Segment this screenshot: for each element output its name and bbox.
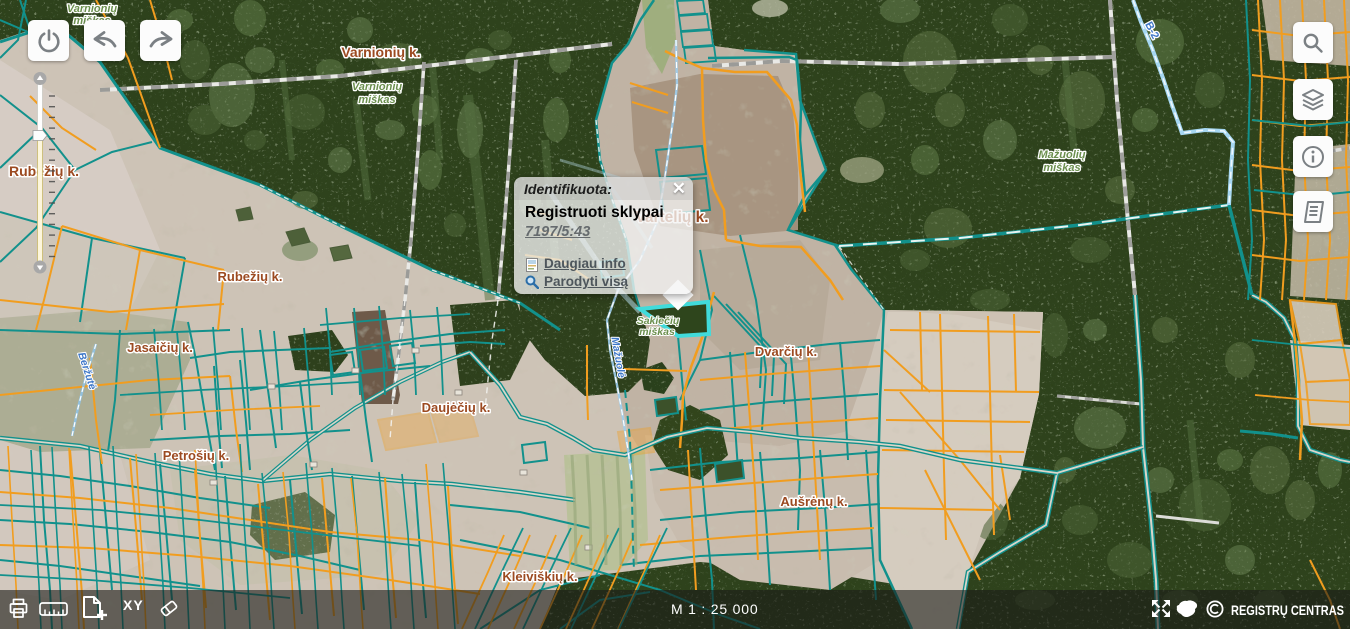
svg-text:miškas: miškas (1043, 162, 1080, 174)
svg-text:Rubežių k.: Rubežių k. (217, 269, 282, 284)
svg-text:Aušrėnų k.: Aušrėnų k. (780, 494, 847, 509)
svg-text:REGISTRŲ CENTRAS: REGISTRŲ CENTRAS (1231, 602, 1344, 618)
svg-text:Dvarčių k.: Dvarčių k. (755, 344, 817, 359)
svg-text:Kleiviškių k.: Kleiviškių k. (502, 569, 577, 584)
svg-text:Varnionių: Varnionių (67, 3, 118, 15)
svg-text:Daujėčių k.: Daujėčių k. (422, 400, 491, 415)
svg-text:Varnionių k.: Varnionių k. (341, 44, 420, 60)
svg-text:Petrošių k.: Petrošių k. (163, 448, 229, 463)
svg-text:Jasaičių k.: Jasaičių k. (127, 340, 193, 355)
svg-text:Mažuolių: Mažuolių (1038, 149, 1085, 161)
svg-text:miškas: miškas (358, 94, 395, 106)
svg-text:miškas: miškas (639, 326, 675, 338)
svg-text:Varnionių: Varnionių (352, 81, 403, 93)
